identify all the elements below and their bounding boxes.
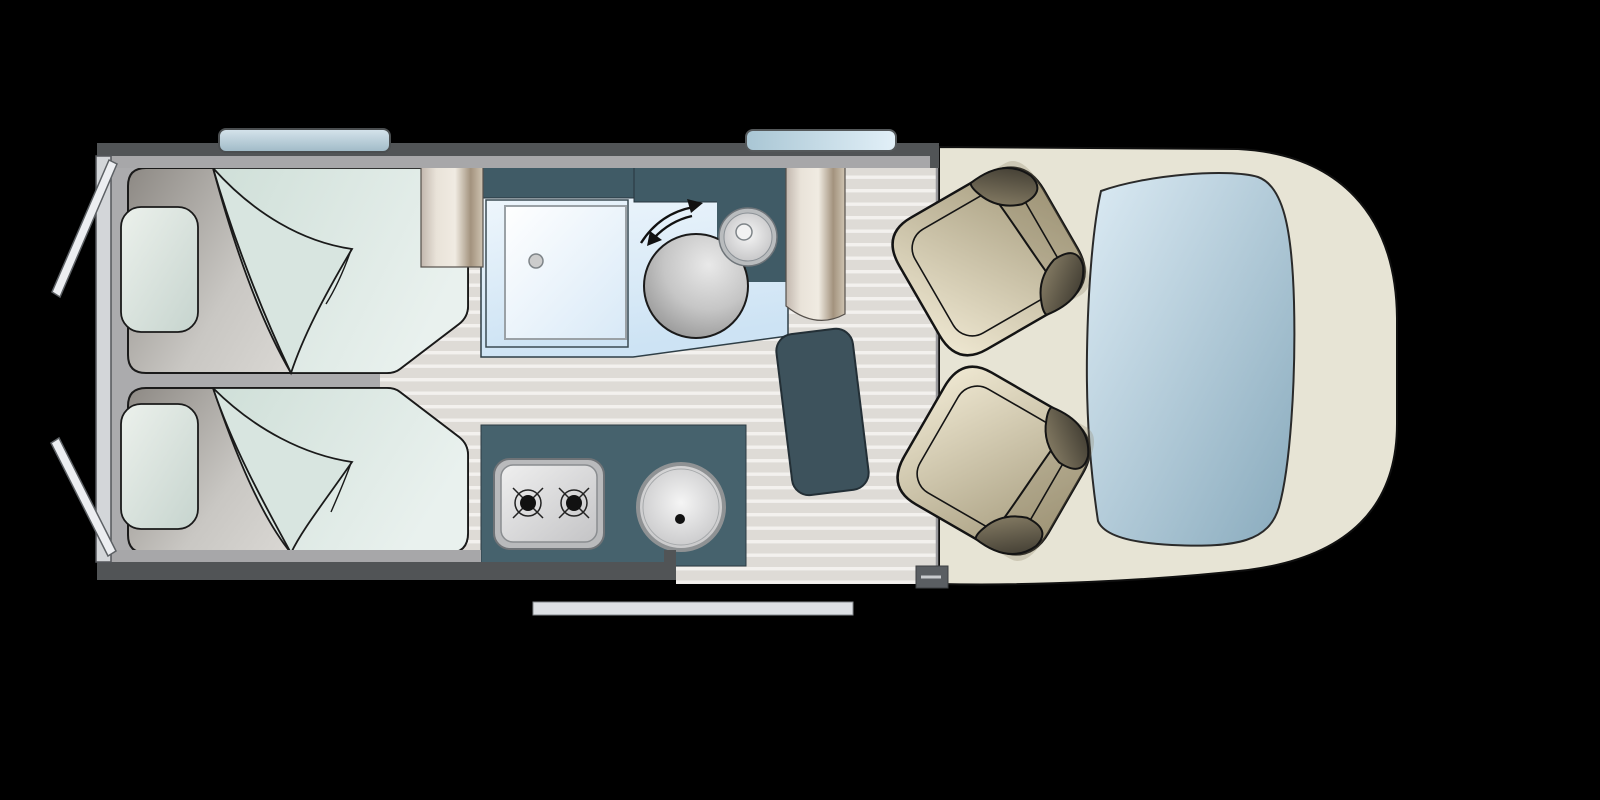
roof-window-rear bbox=[219, 129, 390, 152]
bathroom bbox=[481, 156, 788, 357]
wall-top-inner bbox=[109, 156, 939, 168]
washbasin-faucet bbox=[736, 224, 752, 240]
shower-tray bbox=[505, 206, 626, 339]
kitchen bbox=[481, 425, 746, 566]
wall-bottom-outer bbox=[97, 562, 676, 580]
kitchen-sink-drain bbox=[675, 514, 685, 524]
wardrobe-left bbox=[421, 155, 483, 267]
wall-bottom-end-cap bbox=[664, 550, 676, 580]
rear-wall-frame bbox=[96, 156, 111, 562]
pillow bbox=[121, 404, 198, 529]
floorplan-stage bbox=[0, 0, 1600, 800]
sliding-door-open bbox=[533, 602, 853, 615]
kitchen-sink bbox=[638, 464, 724, 550]
single-bed-bottom bbox=[121, 388, 468, 553]
windshield bbox=[1087, 173, 1295, 546]
wall-top-end-cap bbox=[930, 143, 939, 168]
wardrobe-right bbox=[786, 152, 845, 320]
roof-window-mid bbox=[746, 130, 896, 151]
campervan-floorplan bbox=[0, 0, 1600, 800]
single-bed-top bbox=[121, 168, 468, 373]
wall-bottom-inner bbox=[109, 550, 481, 562]
pillow bbox=[121, 207, 198, 332]
shower-drain bbox=[529, 254, 543, 268]
